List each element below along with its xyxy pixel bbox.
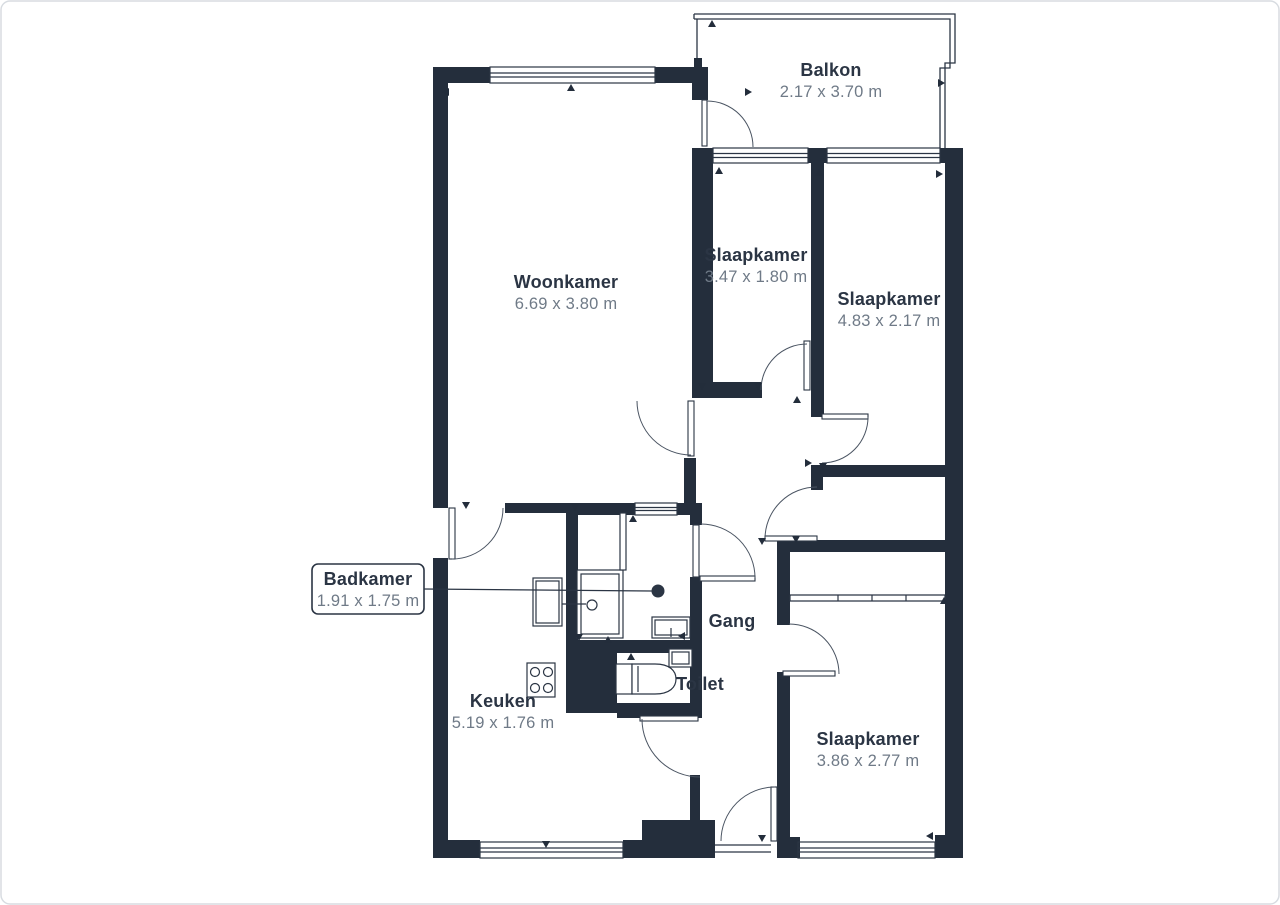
room-woonkamer: Woonkamer6.69 x 3.80 m: [514, 272, 619, 313]
toilet-handbasin-fixture: [669, 649, 692, 667]
toilet-fixture: [616, 664, 676, 694]
room-label-balkon: Balkon: [800, 60, 861, 80]
room-balkon: Balkon2.17 x 3.70 m: [780, 60, 883, 101]
bedroom2-door: [822, 414, 868, 463]
room-dims-slaapkamer-2: 4.83 x 2.17 m: [838, 312, 941, 330]
room-slaapkamer-3: Slaapkamer3.86 x 2.77 m: [816, 729, 919, 770]
closet-door: [765, 487, 817, 541]
room-dims-slaapkamer-3: 3.86 x 2.77 m: [817, 752, 920, 770]
room-dims-balkon: 2.17 x 3.70 m: [780, 83, 883, 101]
room-slaapkamer-1: Slaapkamer3.47 x 1.80 m: [704, 245, 807, 286]
bedroom1-door: [761, 341, 810, 390]
room-gang: Gang: [709, 611, 756, 631]
doors: [449, 100, 868, 852]
bathroom-door: [693, 524, 755, 581]
floor-plan: Badkamer 1.91 x 1.75 m Woonkamer6.69 x 3…: [0, 0, 1280, 905]
window: [480, 842, 623, 858]
window: [635, 503, 677, 515]
room-label-slaapkamer-1: Slaapkamer: [704, 245, 807, 265]
window: [827, 148, 940, 163]
room-toilet: Toilet: [676, 674, 724, 694]
room-label-badkamer: Badkamer: [324, 569, 413, 589]
room-label-woonkamer: Woonkamer: [514, 272, 619, 292]
kitchen-counter-fixture: [533, 578, 562, 626]
room-label-toilet: Toilet: [676, 674, 724, 694]
room-dims-woonkamer: 6.69 x 3.80 m: [515, 295, 618, 313]
toilet-door: [640, 716, 700, 777]
shower-partition: [620, 513, 626, 570]
room-label-slaapkamer-2: Slaapkamer: [837, 289, 940, 309]
window: [713, 148, 808, 163]
window: [798, 842, 935, 858]
leader-dot: [652, 585, 665, 598]
bedroom3-closet-line: [790, 595, 945, 601]
balcony-door: [702, 100, 753, 147]
room-dims-badkamer: 1.91 x 1.75 m: [317, 592, 420, 610]
room-dims-slaapkamer-1: 3.47 x 1.80 m: [705, 268, 808, 286]
bedroom3-door: [783, 624, 839, 676]
balcony-railing: [694, 14, 955, 148]
left-exterior-door: [449, 508, 503, 559]
room-label-keuken: Keuken: [470, 691, 536, 711]
pin-down-markers: [462, 383, 827, 848]
room-dims-keuken: 5.19 x 1.76 m: [452, 714, 555, 732]
room-slaapkamer-2: Slaapkamer4.83 x 2.17 m: [837, 289, 940, 330]
page-border: [1, 1, 1279, 904]
floor-plan-page: Badkamer 1.91 x 1.75 m Woonkamer6.69 x 3…: [0, 0, 1280, 905]
window: [490, 67, 655, 83]
room-label-gang: Gang: [709, 611, 756, 631]
livingroom-hall-door: [637, 401, 694, 456]
room-label-slaapkamer-3: Slaapkamer: [816, 729, 919, 749]
entrance-door: [715, 787, 777, 852]
